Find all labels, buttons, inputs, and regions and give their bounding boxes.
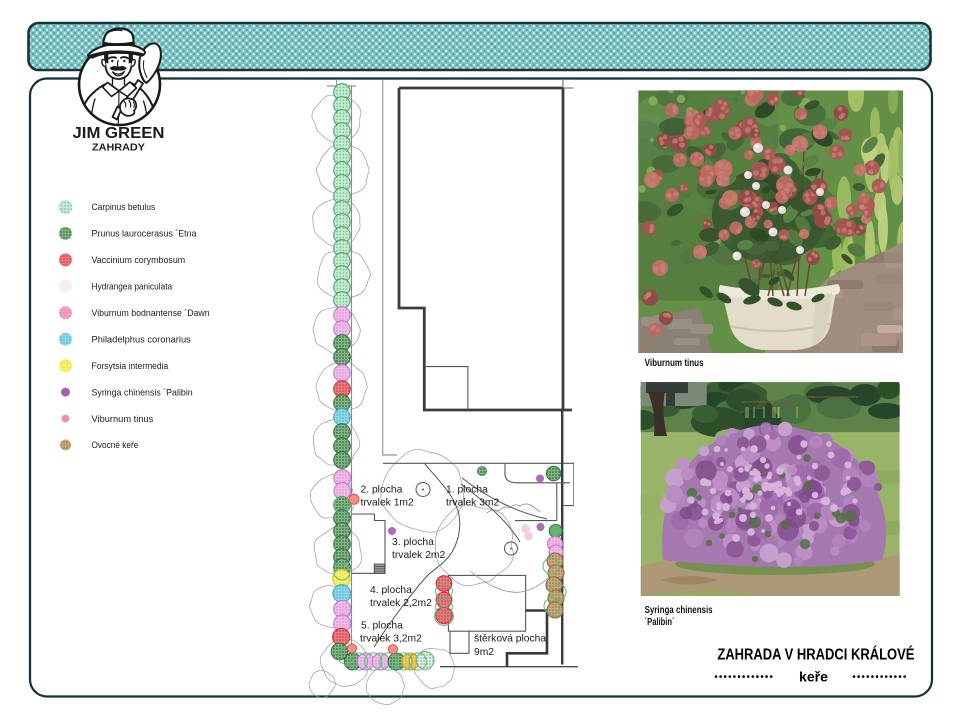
svg-text:ZAHRADY: ZAHRADY [92,143,145,154]
svg-text:Syringa chinensis: Syringa chinensis [645,605,713,616]
svg-text:´Palibin´: ´Palibin´ [645,617,675,628]
svg-text:trvalek 1m2: trvalek 1m2 [361,498,414,509]
svg-text:štěrková plocha: štěrková plocha [474,634,546,645]
svg-text:ZAHRADA V HRADCI KRÁLOVÉ: ZAHRADA V HRADCI KRÁLOVÉ [717,647,914,664]
svg-text:Viburnum tinus: Viburnum tinus [92,414,154,424]
svg-text:4. plocha: 4. plocha [370,585,412,596]
svg-text:5. plocha: 5. plocha [361,621,403,632]
svg-text:trvalek 3,2m2: trvalek 3,2m2 [360,634,422,645]
svg-text:9m2: 9m2 [474,647,494,658]
svg-text:JIM GREEN: JIM GREEN [73,125,165,142]
svg-text:2. plocha: 2. plocha [361,485,403,496]
svg-text:Vaccinium corymbosum: Vaccinium corymbosum [92,255,186,265]
svg-text:Hydrangea paniculata: Hydrangea paniculata [92,282,173,292]
svg-text:trvalek 2m2: trvalek 2m2 [392,550,445,561]
svg-text:Forsytsia intermedia: Forsytsia intermedia [92,361,170,371]
svg-text:Ovocné keře: Ovocné keře [92,440,139,450]
svg-text:1. plocha: 1. plocha [446,485,488,496]
svg-text:3. plocha: 3. plocha [392,537,434,548]
svg-text:Syringa chinensis ´Palibin: Syringa chinensis ´Palibin [92,387,193,397]
svg-text:trvalek 2,2m2: trvalek 2,2m2 [370,598,432,609]
svg-text:Prunus laurocerasus ´Etna: Prunus laurocerasus ´Etna [92,229,198,239]
svg-text:trvalek 3m2: trvalek 3m2 [446,498,499,509]
svg-text:Carpinus betulus: Carpinus betulus [92,202,156,212]
svg-text:Philadelphus coronarius: Philadelphus coronarius [92,334,192,344]
svg-text:keře: keře [799,669,828,685]
svg-text:Viburnum tinus: Viburnum tinus [645,358,704,369]
svg-text:Viburnum bodnantense ´Dawn: Viburnum bodnantense ´Dawn [92,308,210,318]
